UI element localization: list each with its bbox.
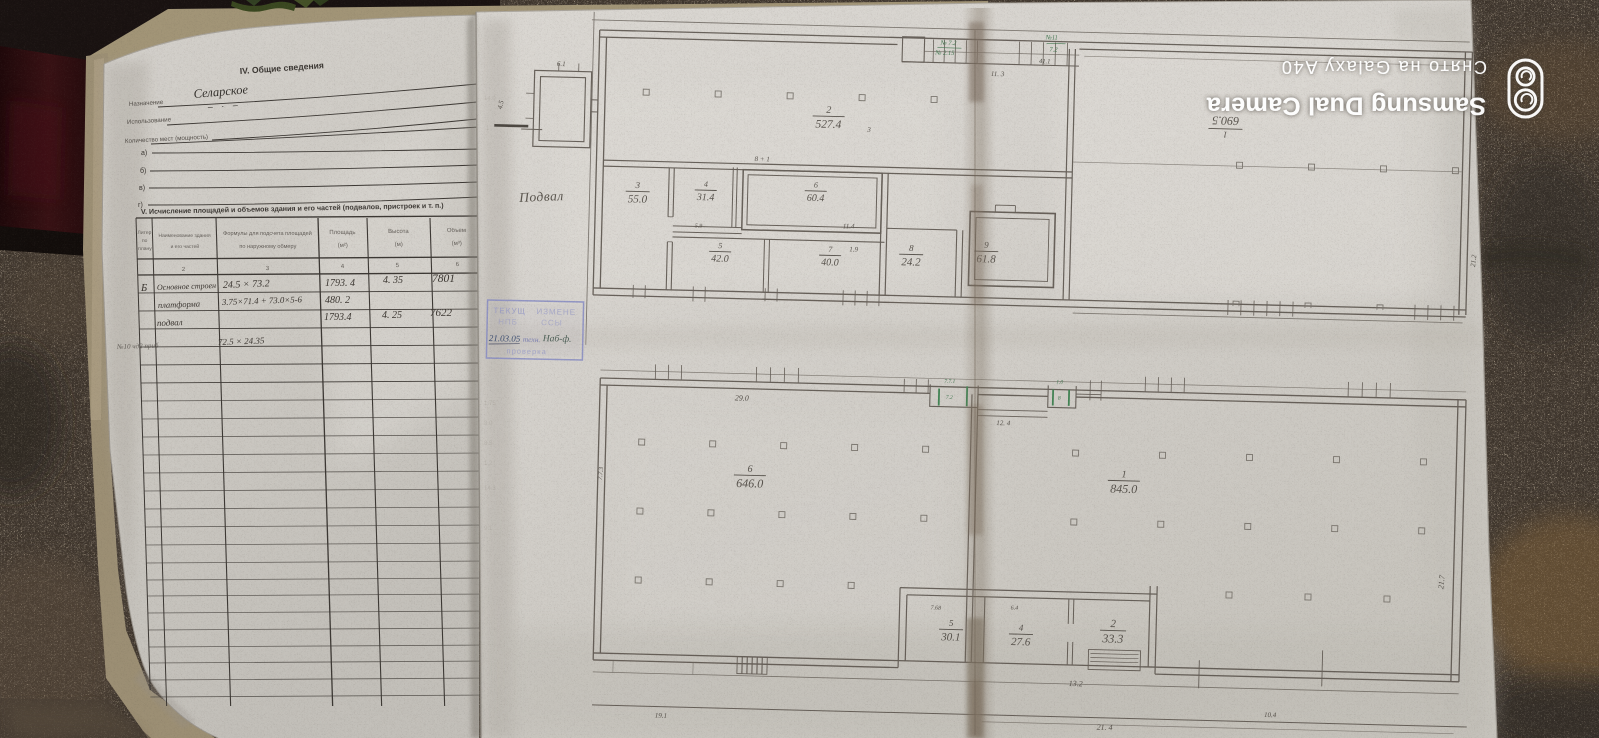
svg-text:Samsung Dual Camera: Samsung Dual Camera (1206, 92, 1486, 120)
svg-text:Снято на Galaxy A40: Снято на Galaxy A40 (1280, 57, 1487, 77)
